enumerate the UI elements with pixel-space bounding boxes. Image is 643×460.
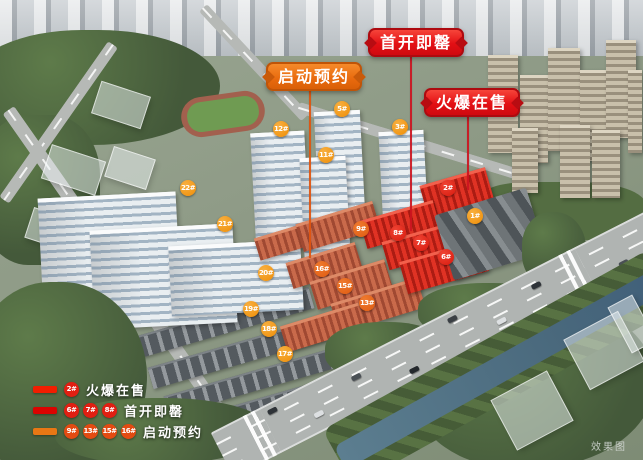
building-marker-13: 13# xyxy=(359,295,375,311)
building-marker-17: 17# xyxy=(277,346,293,362)
building-marker-1: 1# xyxy=(467,208,483,224)
city-tower xyxy=(560,125,590,198)
legend-label: 火爆在售 xyxy=(86,380,146,399)
building-marker-16: 16# xyxy=(314,261,330,277)
city-tower xyxy=(512,128,538,193)
leader-line-first-open xyxy=(410,53,412,231)
building-marker-19: 19# xyxy=(243,301,259,317)
legend-unit-chip: 13# xyxy=(83,424,98,439)
leader-line-reserve xyxy=(309,88,311,258)
building-marker-5: 5# xyxy=(334,101,350,117)
legend-unit-chip: 2# xyxy=(64,382,79,397)
banner-hot-sale: 火爆在售 xyxy=(424,88,520,117)
car xyxy=(267,406,278,415)
legend-label: 启动预约 xyxy=(143,422,203,441)
car xyxy=(447,315,458,324)
legend-swatch-first-open xyxy=(33,407,57,414)
aerial-rendering: 启动预约 首开即罄 火爆在售 12#5#3#11#22#2#1#21#9#8#7… xyxy=(0,0,643,460)
building-marker-2: 2# xyxy=(440,180,456,196)
legend-swatch-reserve xyxy=(33,428,57,435)
legend-row-hot-sale: 2# 火爆在售 xyxy=(33,381,203,397)
legend-row-reserve: 9#13#15#16# 启动预约 xyxy=(33,423,203,439)
sports-field xyxy=(185,94,260,134)
city-tower xyxy=(628,70,642,153)
building-marker-15: 15# xyxy=(337,278,353,294)
car xyxy=(409,365,420,374)
legend-row-first-open: 6#7#8# 首开即罄 xyxy=(33,402,203,418)
legend-unit-chip: 7# xyxy=(83,403,98,418)
legend-unit-chip: 6# xyxy=(64,403,79,418)
legend-unit-chip: 9# xyxy=(64,424,79,439)
building-marker-8: 8# xyxy=(390,225,406,241)
banner-reserve-label: 启动预约 xyxy=(278,67,350,86)
legend-units: 6#7#8# xyxy=(64,403,117,418)
building-marker-20: 20# xyxy=(258,265,274,281)
building-marker-12: 12# xyxy=(273,121,289,137)
banner-hot-sale-label: 火爆在售 xyxy=(436,93,508,112)
building-marker-22: 22# xyxy=(180,180,196,196)
car xyxy=(351,373,362,382)
building-marker-9: 9# xyxy=(353,221,369,237)
banner-first-open: 首开即罄 xyxy=(368,28,464,57)
car xyxy=(313,410,324,419)
legend: 2# 火爆在售 6#7#8# 首开即罄 9#13#15#16# 启动预约 xyxy=(33,381,203,444)
legend-label: 首开即罄 xyxy=(124,401,184,420)
crosswalk xyxy=(243,408,282,460)
city-tower xyxy=(592,130,620,198)
banner-first-open-label: 首开即罄 xyxy=(380,33,452,52)
ghost-building xyxy=(104,146,156,190)
legend-unit-chip: 16# xyxy=(121,424,136,439)
legend-unit-chip: 8# xyxy=(102,403,117,418)
building-marker-18: 18# xyxy=(261,321,277,337)
legend-unit-chip: 15# xyxy=(102,424,117,439)
leader-line-hot-sale xyxy=(467,113,469,190)
car xyxy=(496,316,507,325)
legend-swatch-hot-sale xyxy=(33,386,57,393)
building-marker-11: 11# xyxy=(318,147,334,163)
building-marker-6: 6# xyxy=(438,249,454,265)
building-marker-3: 3# xyxy=(392,119,408,135)
building-marker-7: 7# xyxy=(413,235,429,251)
legend-units: 9#13#15#16# xyxy=(64,424,136,439)
banner-reserve: 启动预约 xyxy=(266,62,362,91)
watermark: 效果图 xyxy=(591,438,627,453)
legend-units: 2# xyxy=(64,382,79,397)
building-marker-21: 21# xyxy=(217,216,233,232)
car xyxy=(531,281,542,290)
